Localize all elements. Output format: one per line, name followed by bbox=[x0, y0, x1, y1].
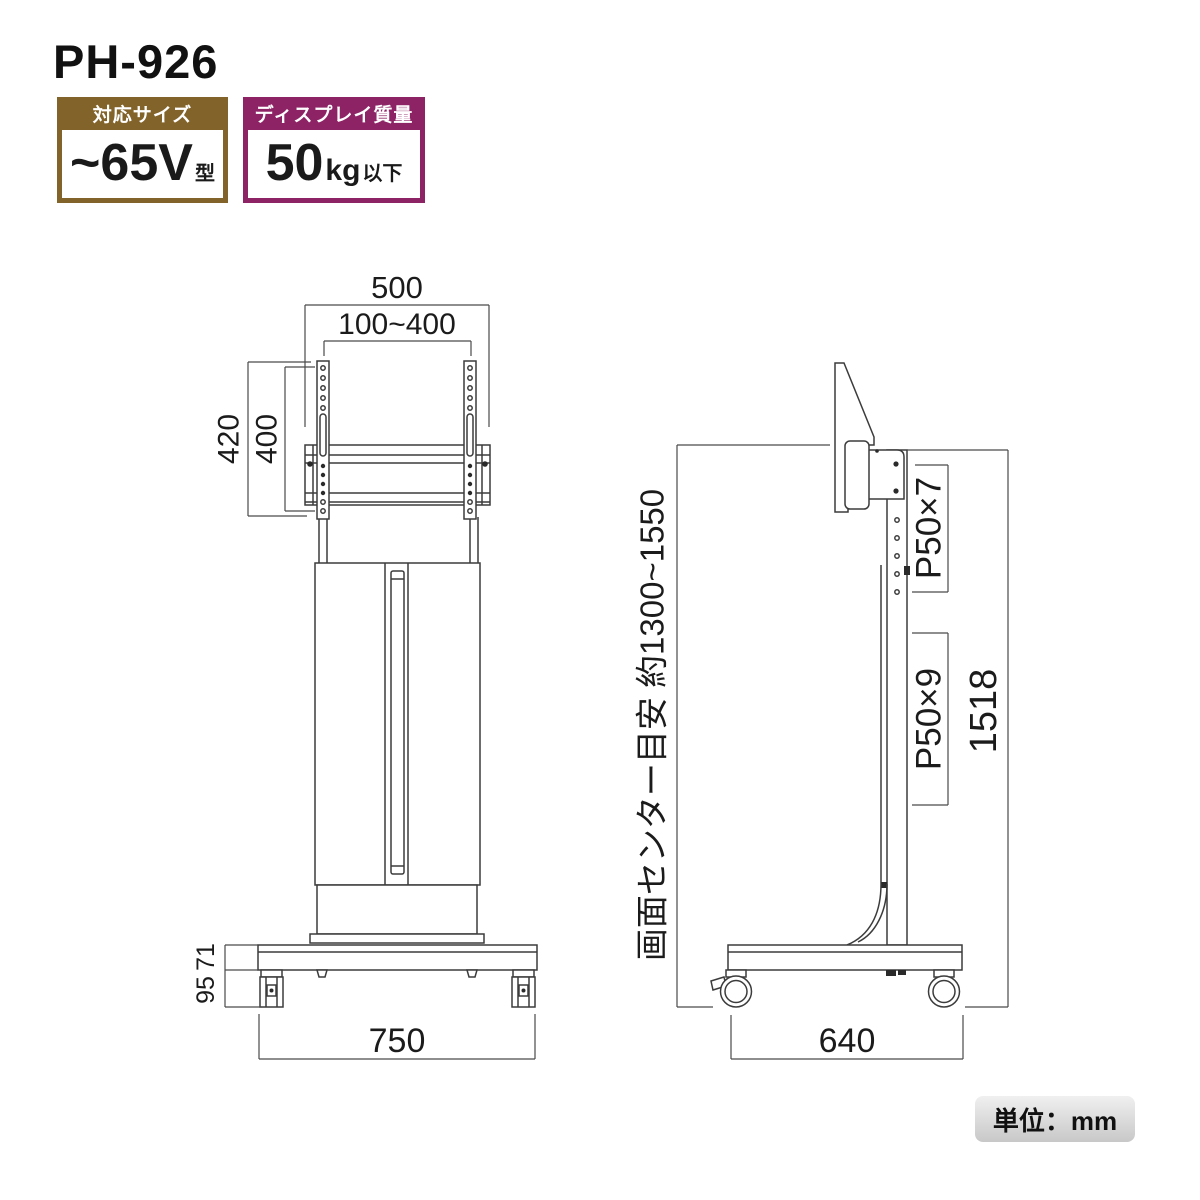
front-crossbar bbox=[305, 445, 490, 505]
front-base bbox=[258, 885, 537, 977]
side-mount-bracket bbox=[845, 441, 904, 509]
dim-front-vesa-width: 100~400 bbox=[338, 308, 456, 341]
dim-side-base-depth: 640 bbox=[819, 1022, 876, 1060]
dim-side-overall-height: 1518 bbox=[963, 669, 1005, 754]
side-column bbox=[847, 450, 910, 945]
dim-side-lower-pitch: P50×9 bbox=[910, 668, 949, 770]
front-column bbox=[315, 563, 480, 885]
dim-side-upper-pitch: P50×7 bbox=[910, 477, 949, 579]
dim-front-base-width: 750 bbox=[369, 1022, 426, 1060]
front-left-rail bbox=[317, 361, 329, 519]
dim-front-bracket-height: 420 bbox=[213, 414, 246, 464]
side-left-caster bbox=[711, 970, 752, 1007]
dim-side-screen-center: 画面センター目安 約1300~1550 bbox=[634, 489, 671, 961]
dim-front-overall-width: 500 bbox=[371, 270, 423, 305]
dim-front-base-top-height: 71 bbox=[192, 943, 220, 971]
front-view-drawing: 500 100~400 420 400 bbox=[192, 270, 537, 1060]
side-right-caster bbox=[929, 970, 960, 1007]
dim-front-base-height: 95 bbox=[192, 976, 220, 1004]
side-base bbox=[728, 945, 962, 976]
dim-front-vesa-height: 400 bbox=[251, 414, 284, 464]
front-right-caster bbox=[512, 970, 535, 1007]
technical-drawing: 500 100~400 420 400 bbox=[0, 0, 1200, 1200]
front-left-caster bbox=[260, 970, 283, 1007]
unit-label: 単位：mm bbox=[975, 1096, 1135, 1142]
side-view-drawing: 画面センター目安 約1300~1550 bbox=[634, 363, 1009, 1060]
front-right-rail bbox=[464, 361, 476, 519]
